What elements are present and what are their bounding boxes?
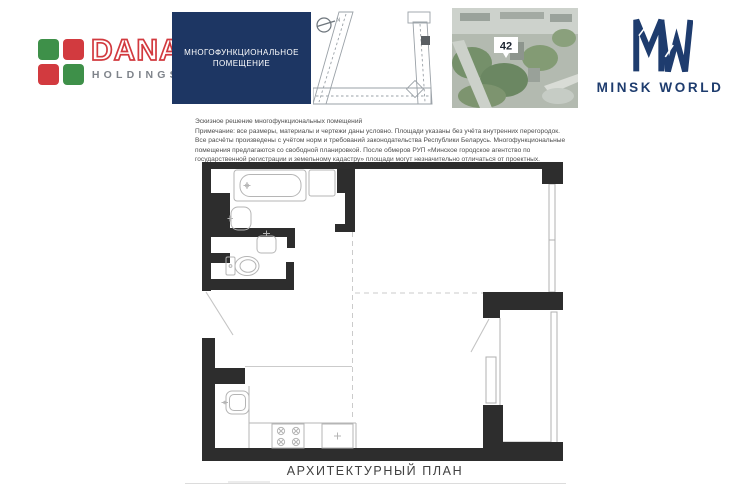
kitchen-appliance xyxy=(322,424,353,448)
footer-divider xyxy=(185,483,566,484)
kitchen-counter xyxy=(249,386,356,448)
unit-type-box: МНОГОФУНКЦИОНАЛЬНОЕ ПОМЕЩЕНИЕ xyxy=(172,12,311,104)
dana-holdings-logo: DANA HOLDINGS xyxy=(38,36,182,85)
logo-square-red xyxy=(38,64,59,85)
building-number: 42 xyxy=(500,41,512,53)
minsk-world-title: MINSK WORLD xyxy=(597,80,724,95)
note-line: помещения предлагаются со свободной план… xyxy=(195,146,567,156)
dashed-partition-lines xyxy=(245,232,483,421)
note-line: Все расчёты произведены с учётом норм и … xyxy=(195,136,567,146)
minsk-world-logo: MINSK WORLD xyxy=(600,14,720,95)
note-line: Примечание: все размеры, материалы и чер… xyxy=(195,127,567,137)
unit-type-line2: ПОМЕЩЕНИЕ xyxy=(213,58,270,69)
bathroom-shelf xyxy=(309,170,335,196)
plan-sheet: DANA HOLDINGS МНОГОФУНКЦИОНАЛЬНОЕ ПОМЕЩЕ… xyxy=(0,0,750,491)
logo-square-green xyxy=(38,39,59,60)
dana-logo-subtitle: HOLDINGS xyxy=(92,69,181,81)
kitchen-sink xyxy=(222,391,250,414)
door-swing-lines xyxy=(206,292,489,352)
dana-squares-icon xyxy=(38,39,84,85)
note-line: Эскизное решение многофункциональных пом… xyxy=(195,117,567,127)
sheet-title: АРХИТЕКТУРНЫЙ ПЛАН xyxy=(0,464,750,478)
apartment-floor-plan xyxy=(190,155,575,465)
logo-square-green xyxy=(63,64,84,85)
stove xyxy=(272,424,304,448)
bathtub xyxy=(234,170,306,201)
mw-monogram-icon xyxy=(627,14,693,76)
highlighted-unit-cell xyxy=(421,36,430,45)
walls xyxy=(202,162,563,461)
logo-square-red xyxy=(63,39,84,60)
dana-logo-title: DANA xyxy=(91,36,182,66)
fine-print-smudge xyxy=(228,481,270,483)
unit-type-line1: МНОГОФУНКЦИОНАЛЬНОЕ xyxy=(184,47,299,58)
toilet xyxy=(226,257,259,276)
floor-key-plan: N xyxy=(313,8,446,111)
bathroom-sink xyxy=(228,207,252,230)
site-aerial-photo: 42 xyxy=(452,8,578,108)
